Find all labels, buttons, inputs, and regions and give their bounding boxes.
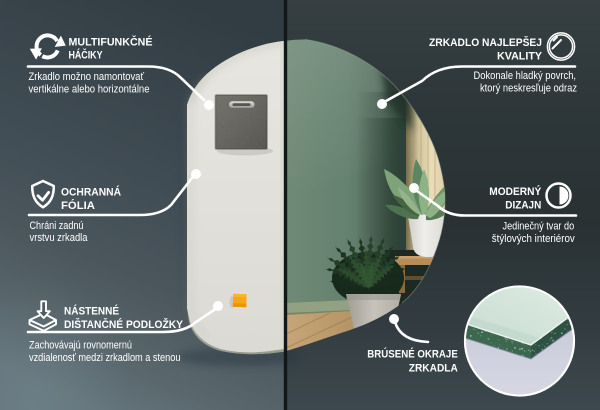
svg-text:vrstvu zrkadla: vrstvu zrkadla [30, 232, 88, 244]
svg-text:OCHRANNÁ: OCHRANNÁ [61, 186, 121, 199]
svg-text:Dokonale hladký povrch,: Dokonale hladký povrch, [474, 70, 577, 82]
svg-text:HÁČIKY: HÁČIKY [69, 48, 104, 61]
svg-text:ktorý neskresľuje odraz: ktorý neskresľuje odraz [480, 83, 577, 95]
svg-text:štýlových interiérov: štýlových interiérov [492, 233, 576, 245]
svg-text:vzdialenosť medzi zrkadlom a s: vzdialenosť medzi zrkadlom a stenou [29, 352, 181, 364]
svg-text:MODERNÝ: MODERNÝ [489, 185, 542, 198]
svg-text:BRÚSENÉ OKRAJE: BRÚSENÉ OKRAJE [367, 347, 458, 360]
svg-text:Zrkadlo možno namontovať: Zrkadlo možno namontovať [29, 71, 145, 83]
svg-text:ZRKADLO NAJLEPŠEJ: ZRKADLO NAJLEPŠEJ [429, 36, 542, 49]
svg-text:DIZAJN: DIZAJN [505, 200, 541, 212]
svg-text:vertikálne alebo horizontálne: vertikálne alebo horizontálne [29, 83, 150, 95]
svg-text:ZRKADLA: ZRKADLA [409, 362, 458, 374]
svg-text:FÓLIA: FÓLIA [61, 199, 95, 212]
svg-text:Jedinečný tvar do: Jedinečný tvar do [503, 221, 575, 233]
svg-text:DIŠTANČNÉ PODLOŽKY: DIŠTANČNÉ PODLOŽKY [64, 318, 184, 331]
svg-text:NÁSTENNÉ: NÁSTENNÉ [64, 305, 119, 318]
svg-text:Zachovávajú rovnomernú: Zachovávajú rovnomernú [29, 339, 132, 351]
svg-text:KVALITY: KVALITY [497, 51, 543, 63]
svg-text:Chráni zadnú: Chráni zadnú [30, 220, 84, 232]
svg-text:MULTIFUNKČNÉ: MULTIFUNKČNÉ [69, 36, 153, 49]
